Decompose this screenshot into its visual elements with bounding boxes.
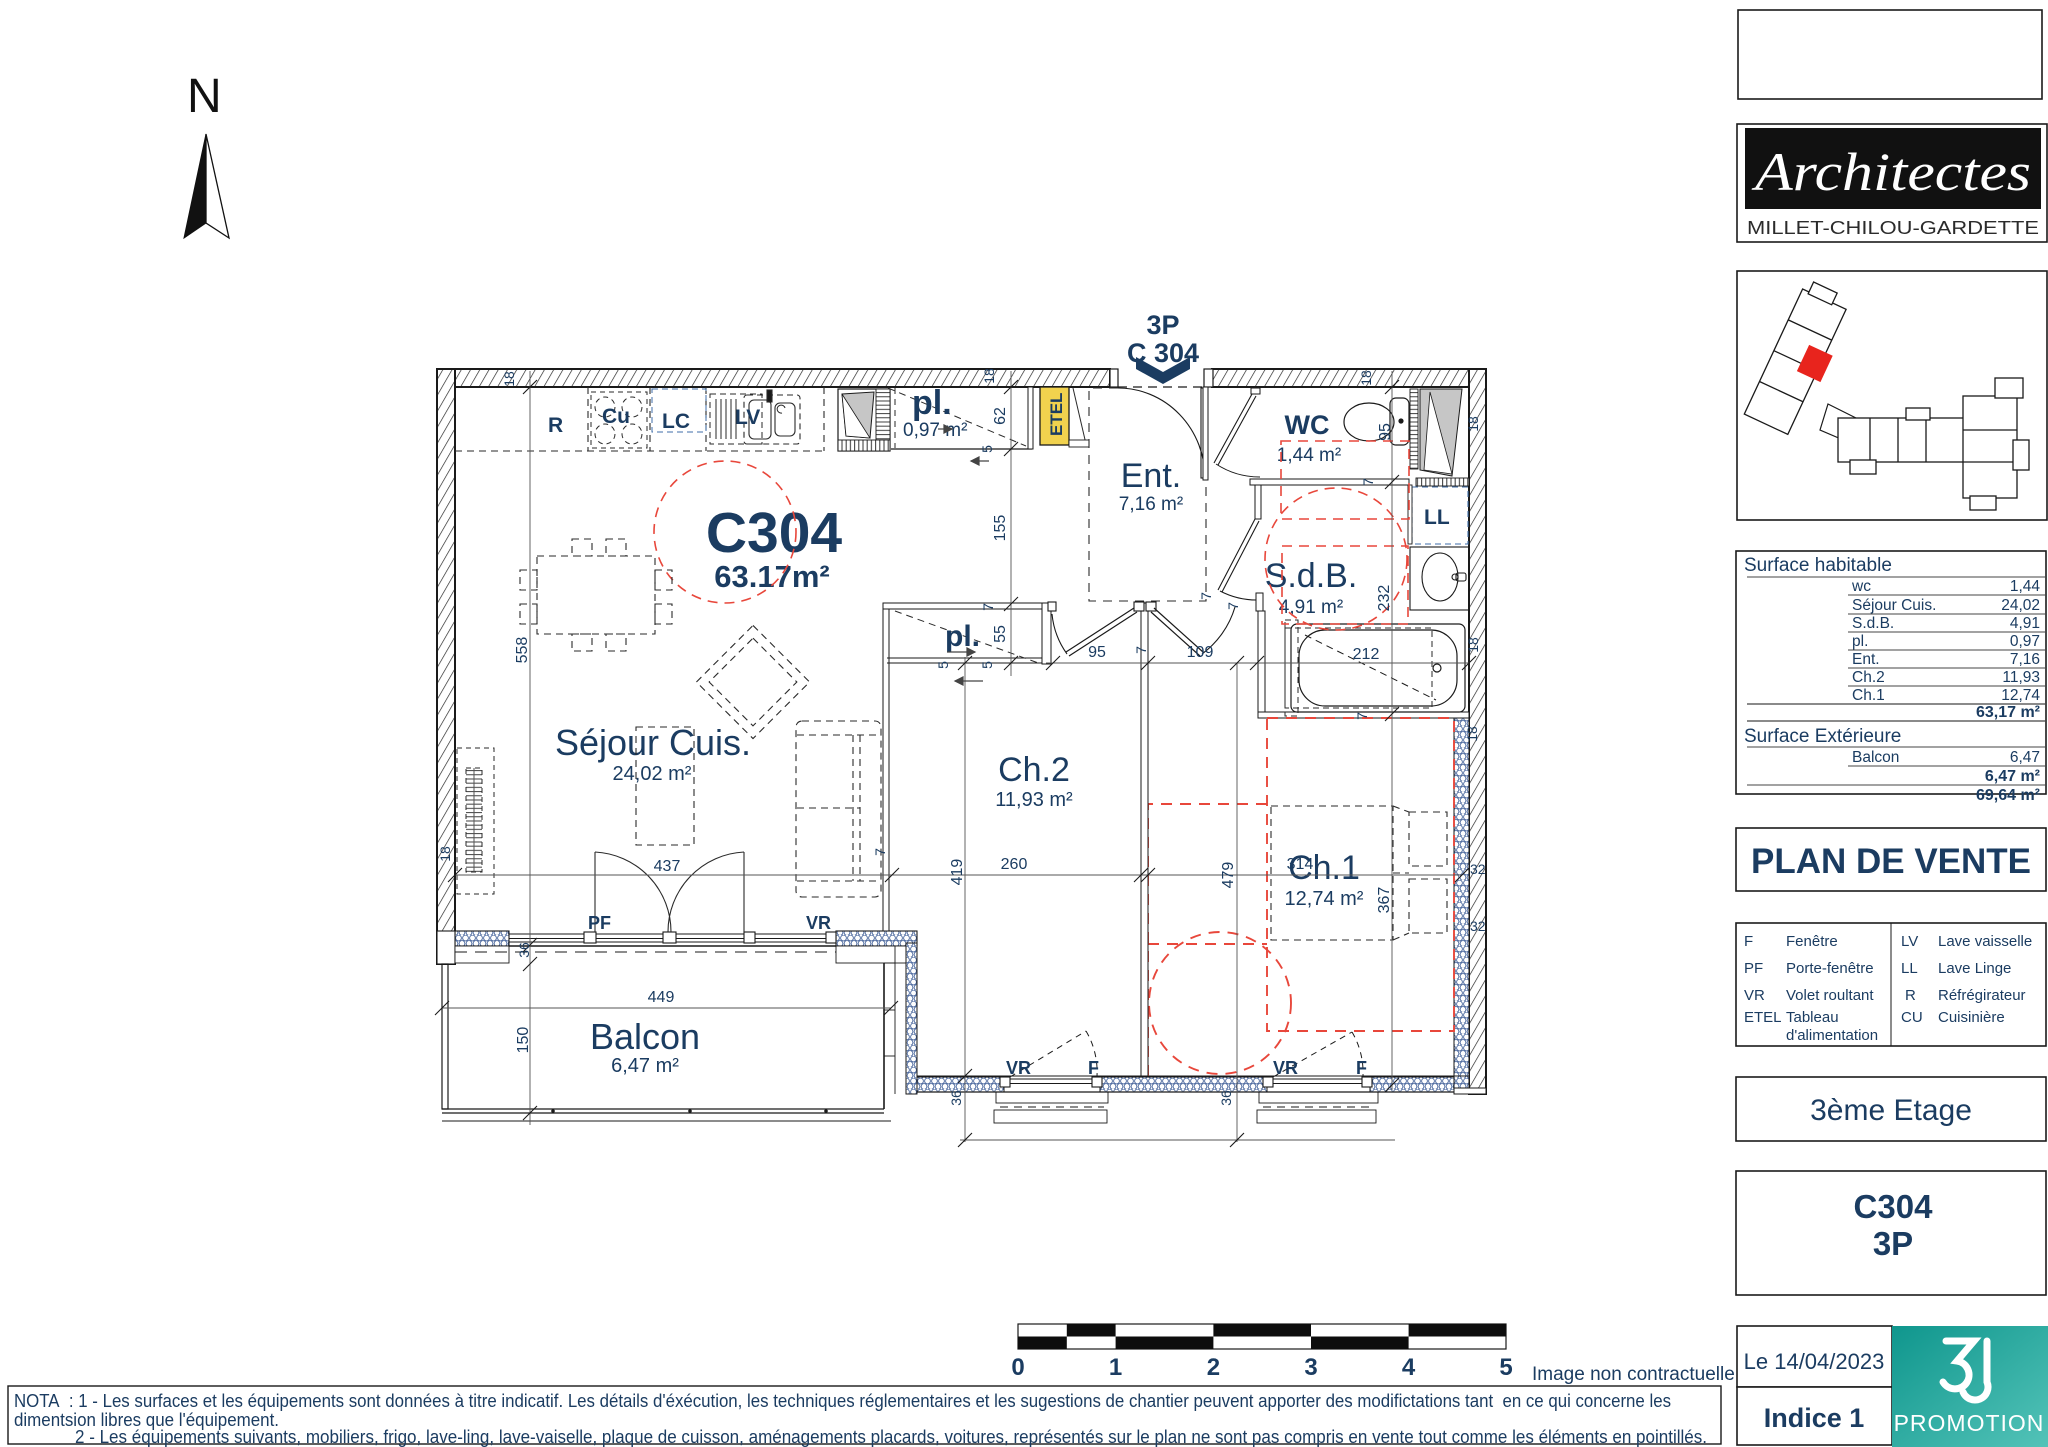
svg-text:NOTA : 1 - Les surfaces et le: NOTA : 1 - Les surfaces et les équipemen…: [14, 1390, 1671, 1411]
svg-text:Porte-fenêtre: Porte-fenêtre: [1786, 960, 1874, 977]
svg-text:4,91 m²: 4,91 m²: [1279, 597, 1343, 618]
svg-text:36: 36: [948, 1090, 964, 1106]
svg-text:F: F: [1088, 1058, 1099, 1078]
svg-text:3P: 3P: [1873, 1225, 1913, 1262]
svg-text:558: 558: [514, 637, 531, 664]
svg-text:N: N: [187, 70, 222, 123]
svg-text:pl.: pl.: [945, 620, 980, 653]
svg-text:R: R: [1905, 987, 1916, 1004]
svg-text:Surface Extérieure: Surface Extérieure: [1744, 726, 1901, 747]
svg-text:449: 449: [648, 989, 675, 1006]
svg-text:18: 18: [437, 846, 453, 862]
svg-text:ETEL: ETEL: [1047, 393, 1066, 436]
svg-text:12,74: 12,74: [2001, 687, 2040, 704]
svg-text:3ème Etage: 3ème Etage: [1810, 1094, 1972, 1127]
svg-text:Lave Linge: Lave Linge: [1938, 960, 2011, 977]
svg-text:S.d.B.: S.d.B.: [1852, 615, 1894, 632]
svg-text:PF: PF: [1744, 960, 1763, 977]
svg-text:7,16 m²: 7,16 m²: [1119, 494, 1183, 515]
svg-text:S.d.B.: S.d.B.: [1265, 557, 1358, 595]
svg-text:Ch.2: Ch.2: [1852, 669, 1885, 686]
svg-text:pl.: pl.: [1852, 633, 1868, 650]
svg-text:212: 212: [1353, 646, 1380, 663]
svg-text:109: 109: [1187, 644, 1214, 661]
svg-text:11,93 m²: 11,93 m²: [995, 789, 1073, 811]
svg-text:LV: LV: [1901, 933, 1918, 950]
svg-text:MILLET-CHILOU-GARDETTE: MILLET-CHILOU-GARDETTE: [1747, 218, 2039, 238]
svg-text:7: 7: [1354, 712, 1370, 720]
svg-text:32: 32: [1470, 918, 1486, 934]
svg-text:Balcon: Balcon: [1852, 749, 1899, 766]
svg-text:7: 7: [1198, 592, 1214, 600]
svg-text:7,16: 7,16: [2010, 651, 2040, 668]
svg-text:18: 18: [501, 371, 517, 387]
svg-text:367: 367: [1376, 887, 1393, 914]
svg-text:7: 7: [980, 603, 996, 611]
svg-text:Cuisinière: Cuisinière: [1938, 1009, 2005, 1026]
svg-text:36: 36: [516, 942, 532, 958]
svg-text:7: 7: [1133, 646, 1149, 654]
svg-text:Cu: Cu: [602, 405, 630, 428]
svg-text:F: F: [1356, 1058, 1367, 1078]
svg-text:69,64 m²: 69,64 m²: [1976, 787, 2040, 804]
svg-text:Fenêtre: Fenêtre: [1786, 933, 1838, 950]
svg-text:2: 2: [1207, 1354, 1220, 1381]
svg-text:R: R: [548, 414, 563, 437]
svg-text:Ent.: Ent.: [1852, 651, 1880, 668]
svg-text:419: 419: [949, 859, 966, 886]
svg-text:Balcon: Balcon: [590, 1016, 700, 1057]
svg-text:4,91: 4,91: [2010, 615, 2040, 632]
svg-text:1: 1: [1109, 1354, 1122, 1381]
svg-text:Ch.1: Ch.1: [1852, 687, 1885, 704]
svg-text:Réfrégirateur: Réfrégirateur: [1938, 987, 2026, 1004]
svg-text:5: 5: [1499, 1354, 1512, 1381]
svg-text:32: 32: [1470, 861, 1486, 877]
svg-text:Indice 1: Indice 1: [1764, 1403, 1865, 1433]
svg-text:VR: VR: [1744, 987, 1765, 1004]
svg-text:Tableau: Tableau: [1786, 1009, 1839, 1026]
svg-text:PROMOTION: PROMOTION: [1894, 1410, 2045, 1436]
svg-text:155: 155: [992, 515, 1009, 542]
svg-text:C304: C304: [1854, 1188, 1934, 1225]
svg-text:62: 62: [992, 407, 1009, 425]
svg-text:Ent.: Ent.: [1121, 457, 1181, 495]
svg-text:5: 5: [979, 445, 995, 453]
svg-text:7: 7: [1225, 602, 1241, 610]
svg-text:Lave vaisselle: Lave vaisselle: [1938, 933, 2032, 950]
svg-text:0: 0: [1011, 1354, 1024, 1381]
svg-text:7: 7: [872, 848, 888, 856]
svg-text:Séjour Cuis.: Séjour Cuis.: [1852, 597, 1936, 614]
svg-text:VR: VR: [1273, 1058, 1298, 1078]
svg-text:6,47 m²: 6,47 m²: [611, 1055, 679, 1077]
svg-text:LL: LL: [1901, 960, 1918, 977]
svg-text:232: 232: [1376, 585, 1393, 612]
svg-text:12,74 m²: 12,74 m²: [1285, 888, 1364, 910]
svg-text:260: 260: [1001, 856, 1028, 873]
svg-text:ETEL: ETEL: [1744, 1009, 1782, 1026]
svg-text:63,17 m²: 63,17 m²: [1976, 704, 2040, 721]
svg-text:Séjour Cuis.: Séjour Cuis.: [555, 722, 751, 763]
svg-text:VR: VR: [1006, 1058, 1031, 1078]
svg-text:1,44 m²: 1,44 m²: [1277, 445, 1341, 466]
svg-text:2 - Les équipements suivants,: 2 - Les équipements suivants, mobiliers,…: [75, 1426, 1707, 1447]
svg-text:LV: LV: [735, 406, 760, 429]
svg-text:Surface habitable: Surface habitable: [1744, 555, 1892, 576]
svg-text:6,47: 6,47: [2010, 749, 2040, 766]
svg-text:18: 18: [1465, 416, 1481, 432]
svg-text:pl.: pl.: [912, 384, 952, 422]
svg-text:VR: VR: [806, 913, 831, 933]
svg-text:95: 95: [1088, 644, 1106, 661]
svg-text:0,97: 0,97: [2010, 633, 2040, 650]
svg-text:63.17m²: 63.17m²: [714, 559, 829, 594]
svg-text:Volet roultant: Volet roultant: [1786, 987, 1874, 1004]
svg-text:150: 150: [515, 1027, 532, 1054]
svg-text:479: 479: [1220, 862, 1237, 889]
svg-text:Le 14/04/2023: Le 14/04/2023: [1744, 1349, 1885, 1374]
svg-text:18: 18: [1465, 637, 1481, 653]
svg-text:4: 4: [1402, 1354, 1416, 1381]
svg-text:7: 7: [1360, 478, 1376, 486]
svg-text:11,93: 11,93: [2002, 669, 2040, 686]
svg-text:314: 314: [1287, 856, 1314, 873]
svg-text:Architectes: Architectes: [1752, 142, 2031, 202]
svg-text:wc: wc: [1851, 578, 1871, 595]
svg-text:PLAN DE VENTE: PLAN DE VENTE: [1751, 842, 2031, 881]
svg-text:5: 5: [979, 661, 995, 669]
svg-text:18: 18: [1464, 726, 1480, 742]
svg-text:Image non contractuelle: Image non contractuelle: [1532, 1364, 1735, 1385]
svg-text:5: 5: [935, 661, 951, 669]
svg-text:3P: 3P: [1146, 310, 1179, 340]
svg-text:95: 95: [1377, 423, 1394, 441]
svg-text:3: 3: [1304, 1354, 1317, 1381]
svg-text:d'alimentation: d'alimentation: [1786, 1027, 1878, 1044]
svg-text:18: 18: [1358, 370, 1374, 386]
svg-text:PF: PF: [588, 913, 611, 933]
svg-text:C304: C304: [706, 501, 843, 565]
svg-text:0,97 m²: 0,97 m²: [903, 420, 967, 441]
svg-text:LC: LC: [662, 410, 690, 433]
svg-text:WC: WC: [1285, 410, 1330, 440]
svg-text:1,44: 1,44: [2010, 578, 2041, 595]
svg-text:Ch.2: Ch.2: [998, 751, 1070, 789]
svg-text:18: 18: [981, 368, 997, 384]
svg-text:55: 55: [992, 625, 1009, 643]
svg-text:24,02: 24,02: [2001, 597, 2040, 614]
svg-text:24,02 m²: 24,02 m²: [613, 763, 692, 785]
svg-text:F: F: [1744, 933, 1753, 950]
svg-text:LL: LL: [1424, 506, 1450, 529]
svg-text:6,47 m²: 6,47 m²: [1985, 768, 2040, 785]
svg-text:437: 437: [654, 858, 681, 875]
svg-text:CU: CU: [1901, 1009, 1923, 1026]
svg-text:36: 36: [1218, 1090, 1234, 1106]
